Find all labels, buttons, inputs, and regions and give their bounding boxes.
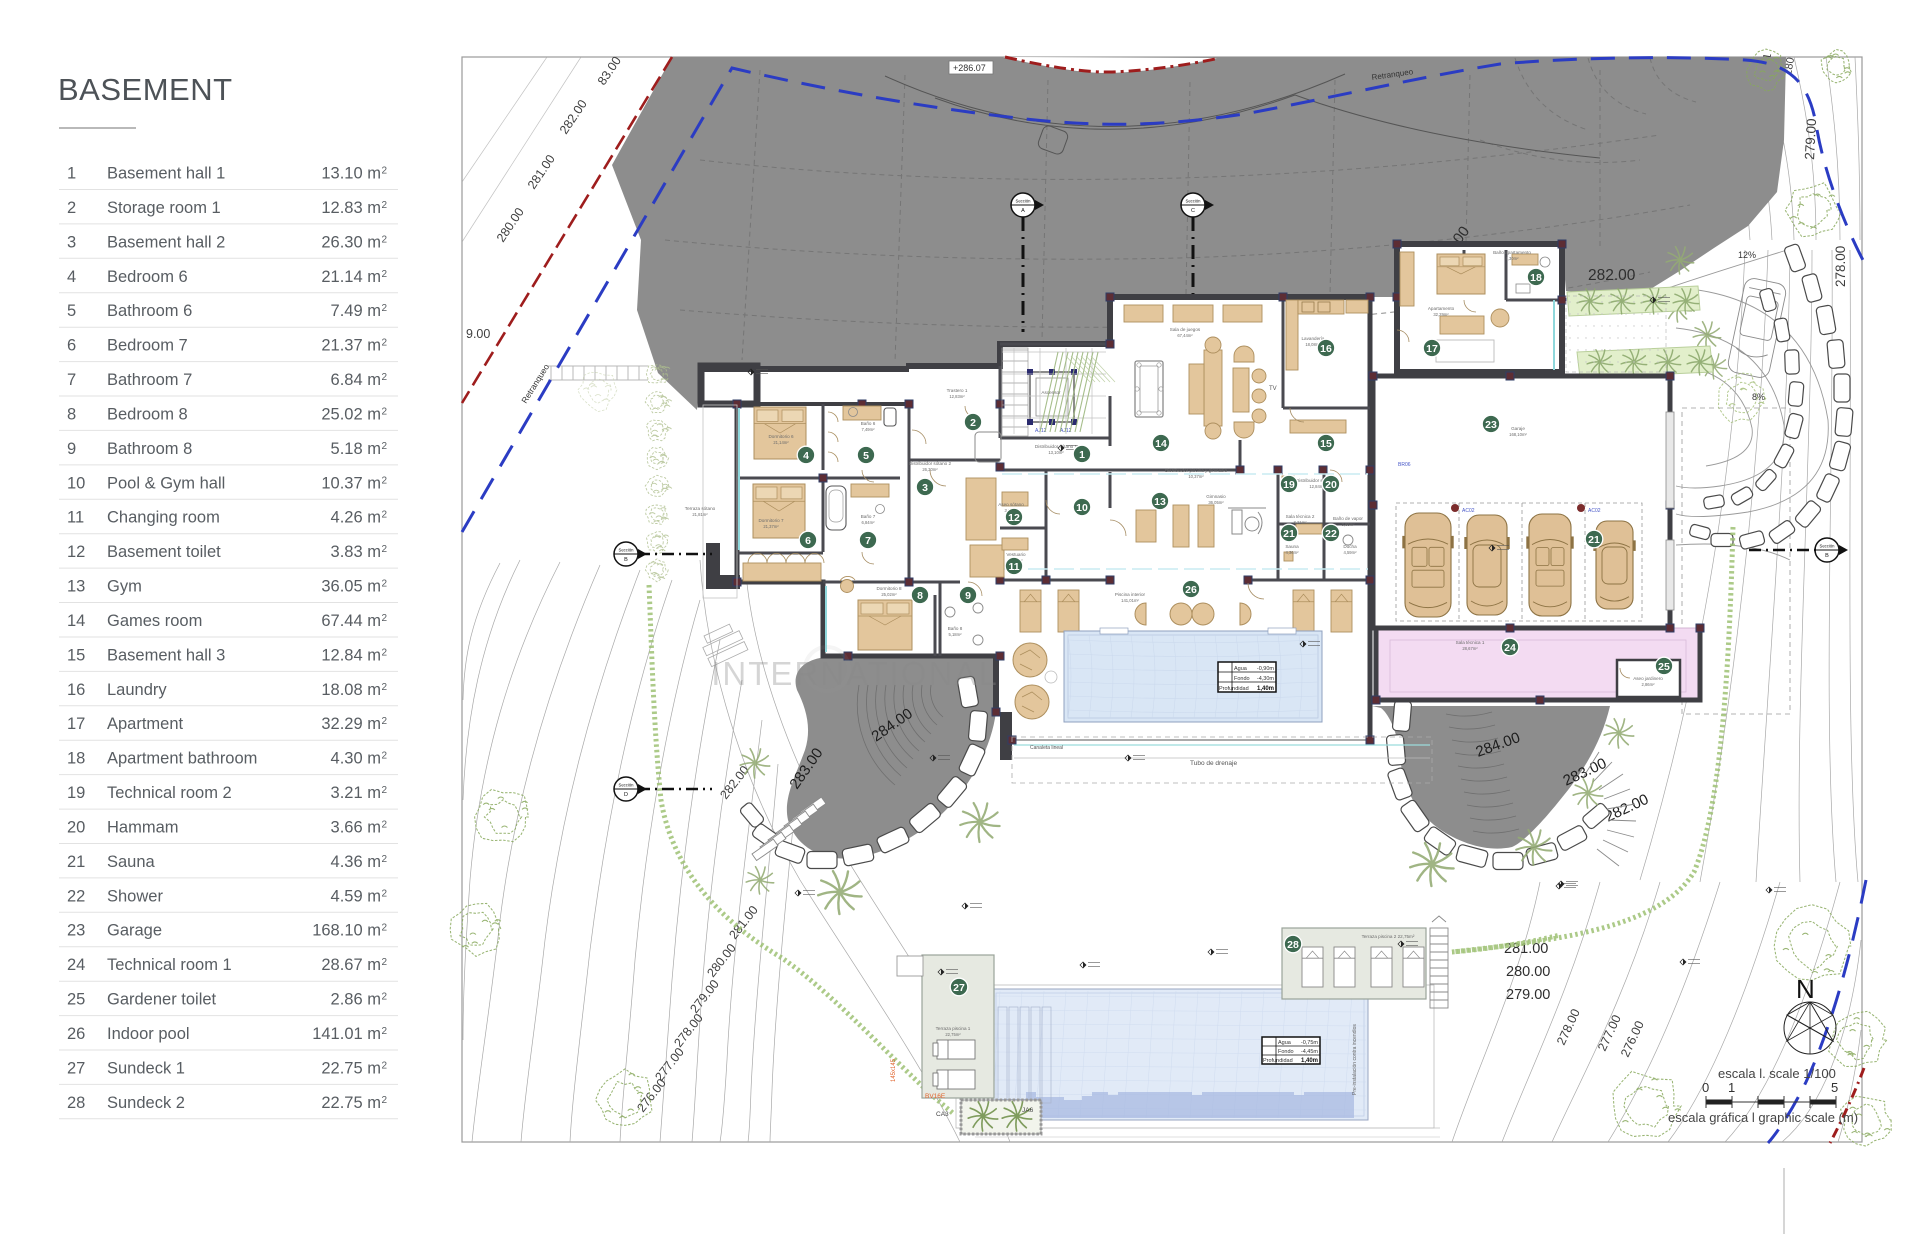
svg-text:3.66 m: 3.66 m — [331, 819, 381, 837]
svg-text:CA3: CA3 — [936, 1111, 949, 1118]
svg-text:3: 3 — [922, 482, 928, 494]
svg-text:12: 12 — [1008, 512, 1020, 524]
svg-text:B: B — [624, 557, 628, 563]
svg-text:Apartment: Apartment — [107, 715, 184, 733]
svg-text:Dormitorio 8: Dormitorio 8 — [876, 586, 901, 591]
svg-text:7: 7 — [67, 371, 76, 389]
svg-text:5.18 m: 5.18 m — [331, 440, 381, 458]
svg-text:-4,45m: -4,45m — [1301, 1049, 1319, 1055]
svg-text:Sección: Sección — [1186, 199, 1202, 204]
svg-text:2: 2 — [970, 417, 976, 429]
svg-text:21: 21 — [1588, 534, 1600, 546]
svg-text:2: 2 — [382, 992, 388, 1003]
svg-text:10: 10 — [1076, 502, 1088, 514]
svg-text:Games room: Games room — [107, 612, 202, 630]
svg-text:1: 1 — [1728, 1080, 1735, 1095]
svg-text:Dormitorio 7: Dormitorio 7 — [758, 518, 783, 523]
svg-text:20: 20 — [67, 819, 85, 837]
svg-text:13: 13 — [67, 578, 85, 596]
svg-text:B: B — [1825, 553, 1829, 559]
svg-text:5: 5 — [863, 450, 869, 462]
svg-text:2: 2 — [382, 510, 388, 521]
svg-text:13.10 m: 13.10 m — [321, 165, 381, 183]
svg-text:2: 2 — [382, 957, 388, 968]
svg-text:Distribuidor sótano 2: Distribuidor sótano 2 — [909, 461, 952, 466]
svg-text:19: 19 — [67, 784, 85, 802]
svg-text:24: 24 — [67, 956, 85, 974]
svg-text:1,40m: 1,40m — [1257, 686, 1274, 692]
svg-text:26: 26 — [67, 1025, 85, 1043]
svg-text:67,44m²: 67,44m² — [1177, 333, 1193, 338]
svg-text:Changing room: Changing room — [107, 509, 220, 527]
svg-text:Sauna: Sauna — [1285, 544, 1299, 549]
svg-text:2: 2 — [382, 785, 388, 796]
svg-text:4.59 m: 4.59 m — [331, 887, 381, 905]
svg-text:Sección: Sección — [619, 548, 635, 553]
svg-text:16: 16 — [1320, 343, 1332, 355]
svg-text:28.67 m: 28.67 m — [321, 956, 381, 974]
svg-text:Baño 8: Baño 8 — [948, 626, 963, 631]
svg-text:19: 19 — [1283, 479, 1295, 491]
svg-text:Sala de juegos: Sala de juegos — [1170, 327, 1201, 332]
svg-text:22: 22 — [1325, 528, 1337, 540]
svg-text:67.44 m: 67.44 m — [321, 612, 381, 630]
svg-text:N: N — [1796, 974, 1815, 1004]
svg-text:168,10m²: 168,10m² — [1509, 432, 1527, 437]
svg-text:Basement toilet: Basement toilet — [107, 543, 221, 561]
svg-text:278.00: 278.00 — [1833, 246, 1848, 287]
svg-text:2: 2 — [382, 923, 388, 934]
svg-text:9: 9 — [965, 590, 971, 602]
svg-text:Sala técnica 2: Sala técnica 2 — [1286, 514, 1315, 519]
svg-text:26,30m²: 26,30m² — [922, 467, 938, 472]
svg-text:8: 8 — [67, 405, 76, 423]
svg-text:20: 20 — [1325, 479, 1337, 491]
svg-text:Garaje: Garaje — [1511, 426, 1525, 431]
svg-text:Distribuidor sótano 1: Distribuidor sótano 1 — [1035, 444, 1078, 449]
svg-text:23: 23 — [1485, 419, 1497, 431]
svg-text:2: 2 — [382, 579, 388, 590]
svg-text:17: 17 — [1426, 343, 1438, 355]
svg-text:C: C — [1191, 208, 1195, 214]
svg-text:Laundry: Laundry — [107, 681, 167, 699]
svg-text:4: 4 — [803, 450, 809, 462]
svg-text:escala gráfica l graphic scal: escala gráfica l graphic scale (m) — [1668, 1110, 1858, 1125]
svg-text:4,59m²: 4,59m² — [1343, 550, 1357, 555]
svg-text:2: 2 — [382, 544, 388, 555]
svg-text:12.83 m: 12.83 m — [321, 199, 381, 217]
svg-text:Dormitorio 6: Dormitorio 6 — [768, 434, 793, 439]
svg-text:3,21m²: 3,21m² — [1293, 520, 1307, 525]
svg-text:3: 3 — [67, 233, 76, 251]
svg-text:25: 25 — [67, 991, 85, 1009]
svg-text:Technical room 2: Technical room 2 — [107, 784, 232, 802]
svg-text:4.30 m: 4.30 m — [331, 750, 381, 768]
svg-text:2: 2 — [382, 751, 388, 762]
svg-text:Sundeck 1: Sundeck 1 — [107, 1059, 185, 1077]
svg-text:2.86 m: 2.86 m — [331, 991, 381, 1009]
svg-text:-4,30m: -4,30m — [1257, 676, 1275, 682]
svg-text:5: 5 — [1831, 1080, 1838, 1095]
svg-text:2: 2 — [382, 372, 388, 383]
svg-text:28: 28 — [67, 1094, 85, 1112]
svg-text:18: 18 — [67, 750, 85, 768]
svg-text:28,67m²: 28,67m² — [1462, 646, 1478, 651]
svg-text:27: 27 — [67, 1059, 85, 1077]
svg-text:21.14 m: 21.14 m — [321, 268, 381, 286]
svg-text:7.49 m: 7.49 m — [331, 302, 381, 320]
svg-text:5: 5 — [67, 302, 76, 320]
svg-text:Bathroom 7: Bathroom 7 — [107, 371, 192, 389]
svg-text:22.75 m: 22.75 m — [321, 1059, 381, 1077]
svg-text:Sección: Sección — [1016, 199, 1032, 204]
svg-text:Bathroom 6: Bathroom 6 — [107, 302, 192, 320]
svg-text:1: 1 — [67, 165, 76, 183]
svg-text:Shower: Shower — [107, 887, 163, 905]
svg-text:-0,90m: -0,90m — [1257, 666, 1275, 672]
svg-text:10: 10 — [67, 474, 85, 492]
svg-text:32.29 m: 32.29 m — [321, 715, 381, 733]
svg-text:14: 14 — [67, 612, 85, 630]
svg-text:3.21 m: 3.21 m — [331, 784, 381, 802]
svg-text:2: 2 — [382, 613, 388, 624]
svg-text:2: 2 — [382, 1060, 388, 1071]
svg-text:Terraza piscina 2 22,75m²: Terraza piscina 2 22,75m² — [1362, 934, 1415, 939]
svg-text:280.00: 280.00 — [1506, 964, 1550, 980]
svg-text:Hammam: Hammam — [107, 819, 179, 837]
svg-text:Gym: Gym — [107, 578, 142, 596]
svg-text:2: 2 — [67, 199, 76, 217]
svg-text:9: 9 — [67, 440, 76, 458]
svg-text:Bedroom 7: Bedroom 7 — [107, 337, 188, 355]
svg-text:Terraza sótano: Terraza sótano — [685, 506, 716, 511]
svg-text:2: 2 — [382, 166, 388, 177]
svg-text:2: 2 — [382, 1095, 388, 1106]
svg-text:Bathroom 8: Bathroom 8 — [107, 440, 192, 458]
svg-text:36,05m²: 36,05m² — [1208, 500, 1224, 505]
svg-text:12.84 m: 12.84 m — [321, 646, 381, 664]
svg-text:22.75 m: 22.75 m — [321, 1094, 381, 1112]
svg-text:Storage room 1: Storage room 1 — [107, 199, 221, 217]
svg-text:8%: 8% — [1752, 392, 1765, 402]
svg-text:22,75m²: 22,75m² — [945, 1032, 961, 1037]
svg-text:Baño apartamento: Baño apartamento — [1493, 250, 1531, 255]
svg-text:Canaleta lineal: Canaleta lineal — [1030, 745, 1063, 751]
svg-text:2: 2 — [382, 269, 388, 280]
svg-text:Gimnasio: Gimnasio — [1206, 494, 1226, 499]
svg-text:Distribuidor piscina y gimnasi: Distribuidor piscina y gimnasio — [1165, 468, 1227, 473]
svg-text:17: 17 — [67, 715, 85, 733]
svg-text:141.01 m: 141.01 m — [312, 1025, 381, 1043]
svg-text:6: 6 — [67, 337, 76, 355]
svg-text:Sundeck 2: Sundeck 2 — [107, 1094, 185, 1112]
svg-text:AC02: AC02 — [1462, 508, 1475, 514]
svg-text:279.00: 279.00 — [1506, 987, 1550, 1003]
svg-text:Tubo de drenaje: Tubo de drenaje — [1190, 760, 1237, 767]
svg-text:13: 13 — [1154, 496, 1166, 508]
svg-text:12%: 12% — [1738, 250, 1756, 260]
svg-text:4: 4 — [67, 268, 76, 286]
svg-text:2: 2 — [382, 338, 388, 349]
svg-text:4,36m²: 4,36m² — [1285, 550, 1299, 555]
svg-text:24: 24 — [1504, 642, 1516, 654]
svg-text:Technical room 1: Technical room 1 — [107, 956, 232, 974]
svg-text:Agua: Agua — [1278, 1040, 1292, 1046]
svg-text:-0,75m: -0,75m — [1301, 1040, 1319, 1046]
svg-text:AC02: AC02 — [1588, 508, 1601, 514]
svg-text:BV16E: BV16E — [925, 1093, 946, 1100]
svg-text:2: 2 — [382, 820, 388, 831]
svg-text:6.84 m: 6.84 m — [331, 371, 381, 389]
svg-text:25: 25 — [1658, 661, 1670, 673]
svg-text:4,30m²: 4,30m² — [1505, 256, 1519, 261]
svg-text:2: 2 — [382, 854, 388, 865]
svg-text:36.05 m: 36.05 m — [321, 578, 381, 596]
svg-text:Basement hall 3: Basement hall 3 — [107, 646, 225, 664]
svg-text:Indoor pool: Indoor pool — [107, 1025, 190, 1043]
svg-text:21,81m²: 21,81m² — [692, 512, 708, 517]
svg-text:2: 2 — [382, 475, 388, 486]
svg-text:282.00: 282.00 — [1588, 267, 1636, 284]
svg-text:8: 8 — [917, 590, 923, 602]
svg-text:Bedroom 8: Bedroom 8 — [107, 405, 188, 423]
svg-text:Apartamento: Apartamento — [1428, 306, 1455, 311]
svg-text:Profundidad: Profundidad — [1263, 1058, 1293, 1064]
svg-text:21: 21 — [67, 853, 85, 871]
svg-text:TV: TV — [1269, 386, 1277, 392]
svg-text:Fondo: Fondo — [1278, 1049, 1294, 1055]
svg-text:7,49m²: 7,49m² — [861, 427, 875, 432]
svg-text:25,02m²: 25,02m² — [881, 592, 897, 597]
svg-text:Apartment bathroom: Apartment bathroom — [107, 750, 257, 768]
svg-text:279.00: 279.00 — [1802, 118, 1819, 160]
svg-text:Basement hall 1: Basement hall 1 — [107, 165, 225, 183]
svg-text:Ascensor: Ascensor — [1041, 390, 1061, 395]
svg-text:BASEMENT: BASEMENT — [58, 72, 233, 107]
svg-text:0: 0 — [1702, 1080, 1709, 1095]
svg-text:18.08 m: 18.08 m — [321, 681, 381, 699]
svg-text:Terraza piscina 1: Terraza piscina 1 — [936, 1026, 971, 1031]
svg-text:D: D — [624, 792, 628, 798]
svg-text:A: A — [1021, 208, 1025, 214]
svg-text:Aseo jardinero: Aseo jardinero — [1633, 676, 1663, 681]
svg-text:168.10 m: 168.10 m — [312, 922, 381, 940]
svg-text:3.83 m: 3.83 m — [331, 543, 381, 561]
svg-text:4.36 m: 4.36 m — [331, 853, 381, 871]
svg-text:22: 22 — [67, 887, 85, 905]
svg-text:145x145: 145x145 — [891, 1058, 897, 1082]
svg-text:Sección: Sección — [1820, 544, 1836, 549]
svg-text:Pool & Gym hall: Pool & Gym hall — [107, 474, 225, 492]
svg-text:1: 1 — [1079, 449, 1085, 461]
svg-text:16: 16 — [67, 681, 85, 699]
svg-text:6,84m²: 6,84m² — [861, 520, 875, 525]
svg-text:18: 18 — [1530, 272, 1542, 284]
svg-text:Baño 6: Baño 6 — [861, 421, 876, 426]
svg-text:Gardener toilet: Gardener toilet — [107, 991, 217, 1009]
svg-text:7: 7 — [865, 535, 871, 547]
svg-text:Bedroom 6: Bedroom 6 — [107, 268, 188, 286]
svg-text:2: 2 — [382, 234, 388, 245]
svg-text:Ducha: Ducha — [1343, 544, 1357, 549]
svg-text:3,66m²: 3,66m² — [1341, 522, 1355, 527]
svg-text:23: 23 — [67, 922, 85, 940]
svg-text:21.37 m: 21.37 m — [321, 337, 381, 355]
svg-text:Piscina interior: Piscina interior — [1115, 592, 1146, 597]
svg-text:Pre-instalación contra incendi: Pre-instalación contra incendios — [1352, 1024, 1358, 1095]
svg-text:28: 28 — [1287, 939, 1299, 951]
svg-text:Aseo sótano: Aseo sótano — [998, 502, 1024, 507]
svg-text:INTERNATIONAL: INTERNATIONAL — [711, 655, 999, 692]
svg-text:Basement hall 2: Basement hall 2 — [107, 233, 225, 251]
svg-text:15: 15 — [67, 646, 85, 664]
svg-text:2: 2 — [382, 200, 388, 211]
svg-text:14: 14 — [1155, 438, 1167, 450]
svg-text:12,83m²: 12,83m² — [949, 394, 965, 399]
svg-text:2: 2 — [382, 303, 388, 314]
svg-text:10.37 m: 10.37 m — [321, 474, 381, 492]
svg-text:2: 2 — [382, 441, 388, 452]
svg-text:Garage: Garage — [107, 922, 162, 940]
svg-text:10,37m²: 10,37m² — [1188, 474, 1204, 479]
svg-text:escala l. scale 1/100: escala l. scale 1/100 — [1718, 1066, 1836, 1081]
svg-text:25.02 m: 25.02 m — [321, 405, 381, 423]
svg-text:2,86m²: 2,86m² — [1641, 682, 1655, 687]
svg-text:2: 2 — [382, 647, 388, 658]
svg-text:JA6: JA6 — [1022, 1107, 1034, 1114]
svg-text:Vestuario: Vestuario — [1006, 552, 1026, 557]
svg-text:Sección: Sección — [619, 783, 635, 788]
svg-text:Fondo: Fondo — [1234, 676, 1250, 682]
svg-text:5,18m²: 5,18m² — [948, 632, 962, 637]
svg-text:2: 2 — [382, 716, 388, 727]
svg-text:Trastero 1: Trastero 1 — [947, 388, 968, 393]
svg-text:26.30 m: 26.30 m — [321, 233, 381, 251]
svg-text:BR06: BR06 — [1398, 462, 1411, 468]
svg-text:Agua: Agua — [1234, 666, 1248, 672]
svg-text:Sauna: Sauna — [107, 853, 156, 871]
svg-text:6: 6 — [805, 535, 811, 547]
svg-text:+286.07: +286.07 — [953, 63, 986, 73]
svg-text:12: 12 — [67, 543, 85, 561]
svg-text:Sala técnica 1: Sala técnica 1 — [1456, 640, 1485, 645]
svg-text:13,10m²: 13,10m² — [1048, 450, 1064, 455]
svg-text:21,37m²: 21,37m² — [763, 524, 779, 529]
svg-text:11: 11 — [67, 509, 84, 527]
svg-text:2: 2 — [382, 888, 388, 899]
svg-text:26: 26 — [1185, 584, 1197, 596]
svg-text:2: 2 — [382, 682, 388, 693]
svg-text:2: 2 — [382, 406, 388, 417]
svg-text:27: 27 — [953, 982, 965, 994]
svg-text:21,14m²: 21,14m² — [773, 440, 789, 445]
svg-text:15: 15 — [1320, 438, 1332, 450]
svg-text:Baño de vapor: Baño de vapor — [1333, 516, 1363, 521]
svg-text:Profundidad: Profundidad — [1219, 686, 1249, 692]
svg-text:141,01m²: 141,01m² — [1121, 598, 1139, 603]
svg-text:4.26 m: 4.26 m — [331, 509, 381, 527]
svg-text:9.00: 9.00 — [466, 327, 490, 341]
svg-text:21: 21 — [1283, 528, 1295, 540]
svg-text:Baño 7: Baño 7 — [861, 514, 876, 519]
svg-text:1,40m: 1,40m — [1301, 1058, 1318, 1064]
svg-text:32,29m²: 32,29m² — [1433, 312, 1449, 317]
svg-text:2: 2 — [382, 1026, 388, 1037]
svg-text:11: 11 — [1008, 561, 1019, 573]
